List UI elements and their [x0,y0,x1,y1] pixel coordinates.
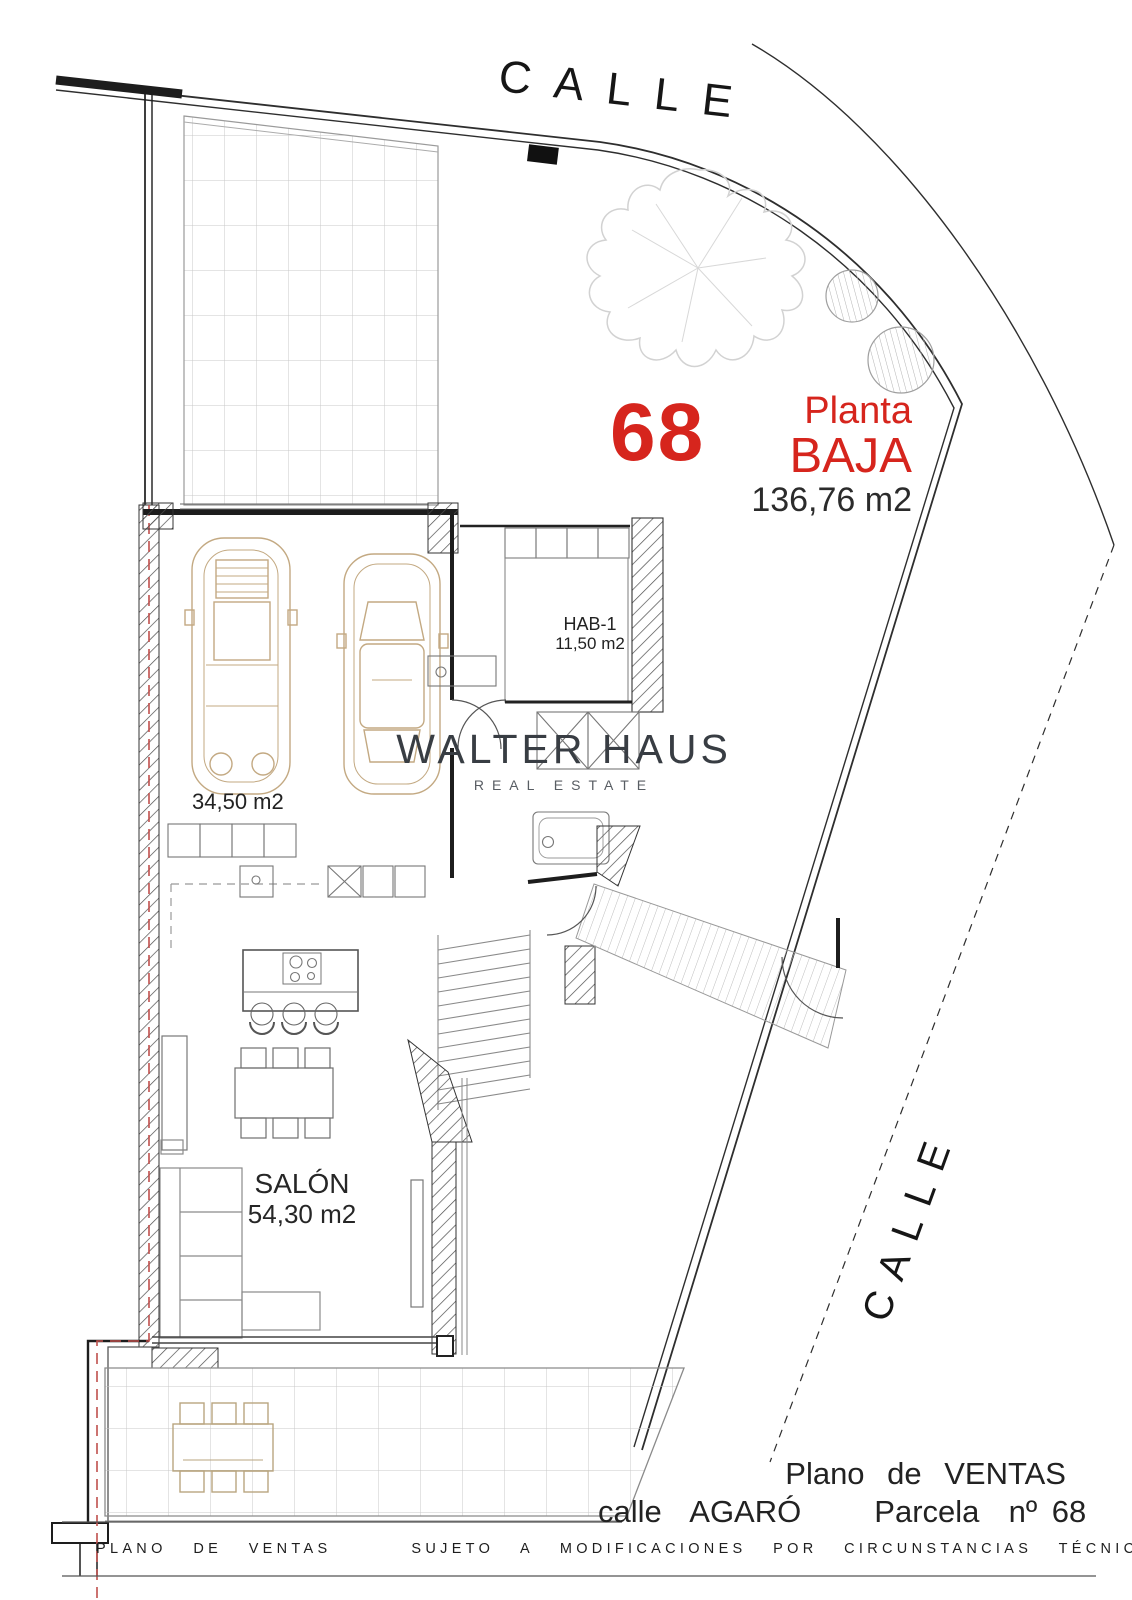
watermark-tagline: REAL ESTATE [394,777,734,793]
total-area: 136,76 m2 [728,482,912,519]
top-patio-terrace [184,116,438,505]
parcel-number: 68 [610,386,705,480]
watermark-brand: WALTER HAUS [394,729,734,770]
title-line2: calle AGARÓ Parcela nº 68 [598,1494,1066,1530]
floor-plan-page: CALLE 68 Planta BAJA 136,76 m2 HAB-1 11,… [0,0,1132,1600]
garden-bushes [826,270,934,393]
living-room-name: SALÓN [230,1168,374,1200]
title-block: Plano de VENTAS calle AGARÓ Parcela nº 6… [598,1456,1066,1529]
car-left [185,538,297,794]
kitchen [171,866,425,1034]
floor-title-block: Planta BAJA 136,76 m2 [728,392,912,519]
shower [428,656,496,686]
floor-name-line1: Planta [728,392,912,432]
bedroom-area: 11,50 m2 [533,635,647,654]
garage-walls [143,503,501,878]
living-room-label: SALÓN 54,30 m2 [230,1168,374,1229]
garage-area: 34,50 m2 [192,789,284,815]
floor-name-line2: BAJA [728,432,912,481]
gate-pillar [527,144,559,165]
watermark: WALTER HAUS REAL ESTATE [394,729,734,793]
garage-cabinets [168,824,296,857]
hall-walls [528,826,640,886]
bedroom-label: HAB-1 11,50 m2 [533,615,647,653]
floor-plan-drawing [0,0,1132,1600]
garden-tree [587,169,805,367]
dining-table [235,1048,333,1138]
stair-wall-hatch [565,946,595,1004]
title-line1: Plano de VENTAS [598,1456,1066,1492]
footer-disclaimer: PLANO DE VENTAS SUJETO A MODIFICACIONES … [96,1541,1132,1557]
bedroom-name: HAB-1 [533,615,647,635]
living-room-area: 54,30 m2 [230,1200,374,1229]
